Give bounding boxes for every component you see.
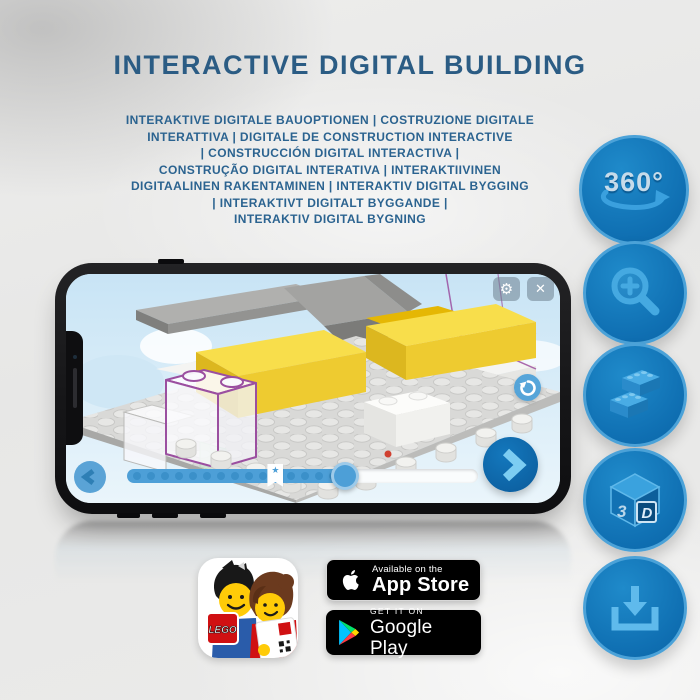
app-store-text: Available on the App Store xyxy=(372,564,469,596)
progress-step-dot xyxy=(217,472,225,480)
phone-volume-up-button xyxy=(152,513,178,518)
app-store-badge[interactable]: Available on the App Store xyxy=(326,559,481,601)
progress-step-dot xyxy=(315,472,323,480)
brick-stack-icon xyxy=(602,366,668,424)
progress-step-dot xyxy=(175,472,183,480)
progress-step-dot xyxy=(301,472,309,480)
google-play-badge[interactable]: GET IT ON Google Play xyxy=(326,610,481,655)
close-icon: ✕ xyxy=(535,282,546,297)
settings-button[interactable]: ⚙ xyxy=(493,277,520,301)
subtitle-translations: INTERAKTIVE DIGITALE BAUOPTIONEN | COSTR… xyxy=(30,112,630,228)
chevron-right-icon xyxy=(484,438,538,492)
progress-step-dot xyxy=(203,472,211,480)
phone-mockup: ⚙ ✕ xyxy=(55,263,571,514)
next-step-button[interactable] xyxy=(483,437,538,492)
reset-rotation-button[interactable] xyxy=(514,374,541,401)
lego-app-icon[interactable]: LEGO xyxy=(198,558,298,658)
progress-dots xyxy=(133,472,337,480)
earpiece-speaker xyxy=(73,368,77,408)
progress-step-dot xyxy=(259,472,267,480)
progress-step-dot xyxy=(287,472,295,480)
apple-icon xyxy=(339,566,363,594)
chevron-left-icon xyxy=(74,461,106,493)
feature-zoom xyxy=(583,241,687,345)
progress-step-dot xyxy=(147,472,155,480)
subtitle-line: | INTERAKTIVT DIGITALT BYGGANDE | xyxy=(30,195,630,212)
lego-logo-text: LEGO xyxy=(208,625,237,636)
previous-step-button[interactable] xyxy=(74,461,106,493)
phone-volume-down-button xyxy=(200,513,226,518)
phone-mute-switch xyxy=(117,513,140,518)
progress-step-dot xyxy=(245,472,253,480)
progress-step-dot xyxy=(133,472,141,480)
360-arrow-icon xyxy=(597,189,671,213)
feature-360-rotation: 360° xyxy=(579,135,689,245)
rotate-icon xyxy=(519,379,537,397)
google-play-tagline: GET IT ON xyxy=(370,606,471,617)
google-play-text: GET IT ON Google Play xyxy=(370,606,471,659)
page-title: INTERACTIVE DIGITAL BUILDING xyxy=(0,50,700,81)
google-play-name: Google Play xyxy=(370,617,471,659)
phone-power-button xyxy=(158,259,184,264)
subtitle-line: INTERAKTIV DIGITAL BYGNING xyxy=(30,211,630,228)
progress-step-dot xyxy=(189,472,197,480)
progress-step-dot xyxy=(231,472,239,480)
feature-download xyxy=(583,556,687,660)
subtitle-line: INTERATTIVA | DIGITALE DE CONSTRUCTION I… xyxy=(30,129,630,146)
app-icon-art: LEGO xyxy=(198,558,298,658)
progress-fill xyxy=(127,469,345,483)
progress-thumb[interactable] xyxy=(331,462,359,490)
google-play-icon xyxy=(338,619,361,646)
progress-step-dot xyxy=(161,472,169,480)
cube-d-label: D xyxy=(642,505,653,522)
phone-reflection xyxy=(55,521,571,605)
app-store-name: App Store xyxy=(372,575,469,596)
gear-icon: ⚙ xyxy=(500,280,513,298)
zoom-in-icon xyxy=(604,262,666,324)
front-camera xyxy=(73,355,77,359)
feature-3d-view: 3 D xyxy=(583,448,687,552)
subtitle-line: DIGITAALINEN RAKENTAMINEN | INTERAKTIV D… xyxy=(30,178,630,195)
download-icon xyxy=(606,581,664,635)
promo-canvas: INTERACTIVE DIGITAL BUILDING INTERAKTIVE… xyxy=(0,0,700,700)
subtitle-line: INTERAKTIVE DIGITALE BAUOPTIONEN | COSTR… xyxy=(30,112,630,129)
subtitle-line: | CONSTRUCCIÓN DIGITAL INTERACTIVA | xyxy=(30,145,630,162)
3d-cube-icon: 3 D xyxy=(604,470,666,530)
phone-notch xyxy=(66,331,83,445)
feature-bricks xyxy=(583,343,687,447)
build-progress-bar[interactable]: ★ xyxy=(127,469,478,483)
subtitle-line: CONSTRUÇÃO DIGITAL INTERATIVA | INTERAKT… xyxy=(30,162,630,179)
close-button[interactable]: ✕ xyxy=(527,277,554,301)
cube-3-label: 3 xyxy=(617,502,627,521)
app-screen: ⚙ ✕ xyxy=(66,274,560,503)
